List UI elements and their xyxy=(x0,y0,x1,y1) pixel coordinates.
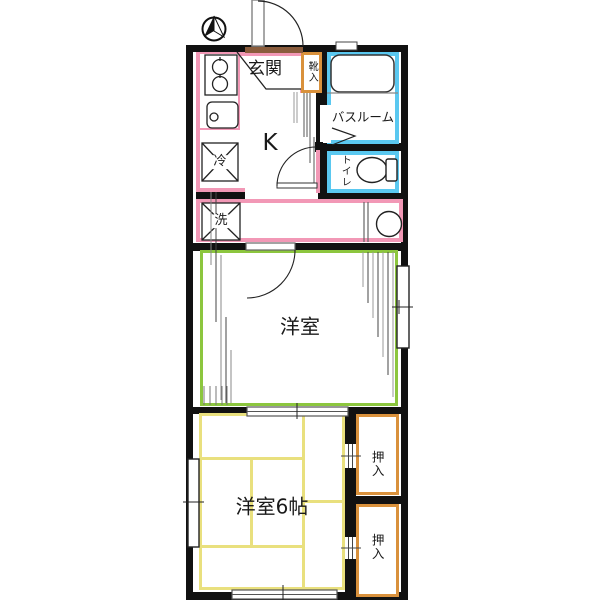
window-left-icon xyxy=(183,459,204,547)
floor-plan: 玄関 靴入 バスルーム トイレ K 冷 洗 洋室 洋室6帖 押入 押入 xyxy=(0,0,600,600)
western-room-label: 洋室 xyxy=(280,317,320,338)
toilet-icon xyxy=(357,158,397,183)
closet-upper-label: 押入 xyxy=(370,451,383,478)
refrigerator-label: 冷 xyxy=(212,155,227,169)
entrance-label: 玄関 xyxy=(248,61,282,79)
stove-icon xyxy=(205,55,237,95)
washroom-divider xyxy=(364,202,368,242)
compass-north-icon xyxy=(203,16,226,41)
bathtub-icon xyxy=(327,55,398,93)
bathroom-label: バスルーム xyxy=(332,110,394,123)
closet-lower-door-icon xyxy=(341,537,361,559)
sink-icon xyxy=(207,102,238,128)
toilet-label: トイレ xyxy=(339,155,350,188)
kitchen-label: K xyxy=(262,131,277,155)
wall-vent-notch xyxy=(336,42,357,50)
floor-lines-right xyxy=(363,252,393,397)
shoe-cabinet-label: 靴入 xyxy=(306,61,317,83)
western-room-6-label: 洋室6帖 xyxy=(236,497,309,518)
washer-label: 洗 xyxy=(213,214,228,228)
washbasin-icon xyxy=(377,212,402,237)
entrance-door-icon xyxy=(252,0,303,46)
bathroom-door-icon xyxy=(332,128,355,145)
closet-upper-door-icon xyxy=(341,444,361,468)
western-room-door-icon xyxy=(246,243,295,298)
sliding-door-icon xyxy=(247,403,348,419)
closet-lower-label: 押入 xyxy=(370,534,383,561)
window-bottom-icon xyxy=(232,585,337,600)
window-right-icon xyxy=(392,266,413,348)
step-hatch-lines xyxy=(204,386,227,405)
